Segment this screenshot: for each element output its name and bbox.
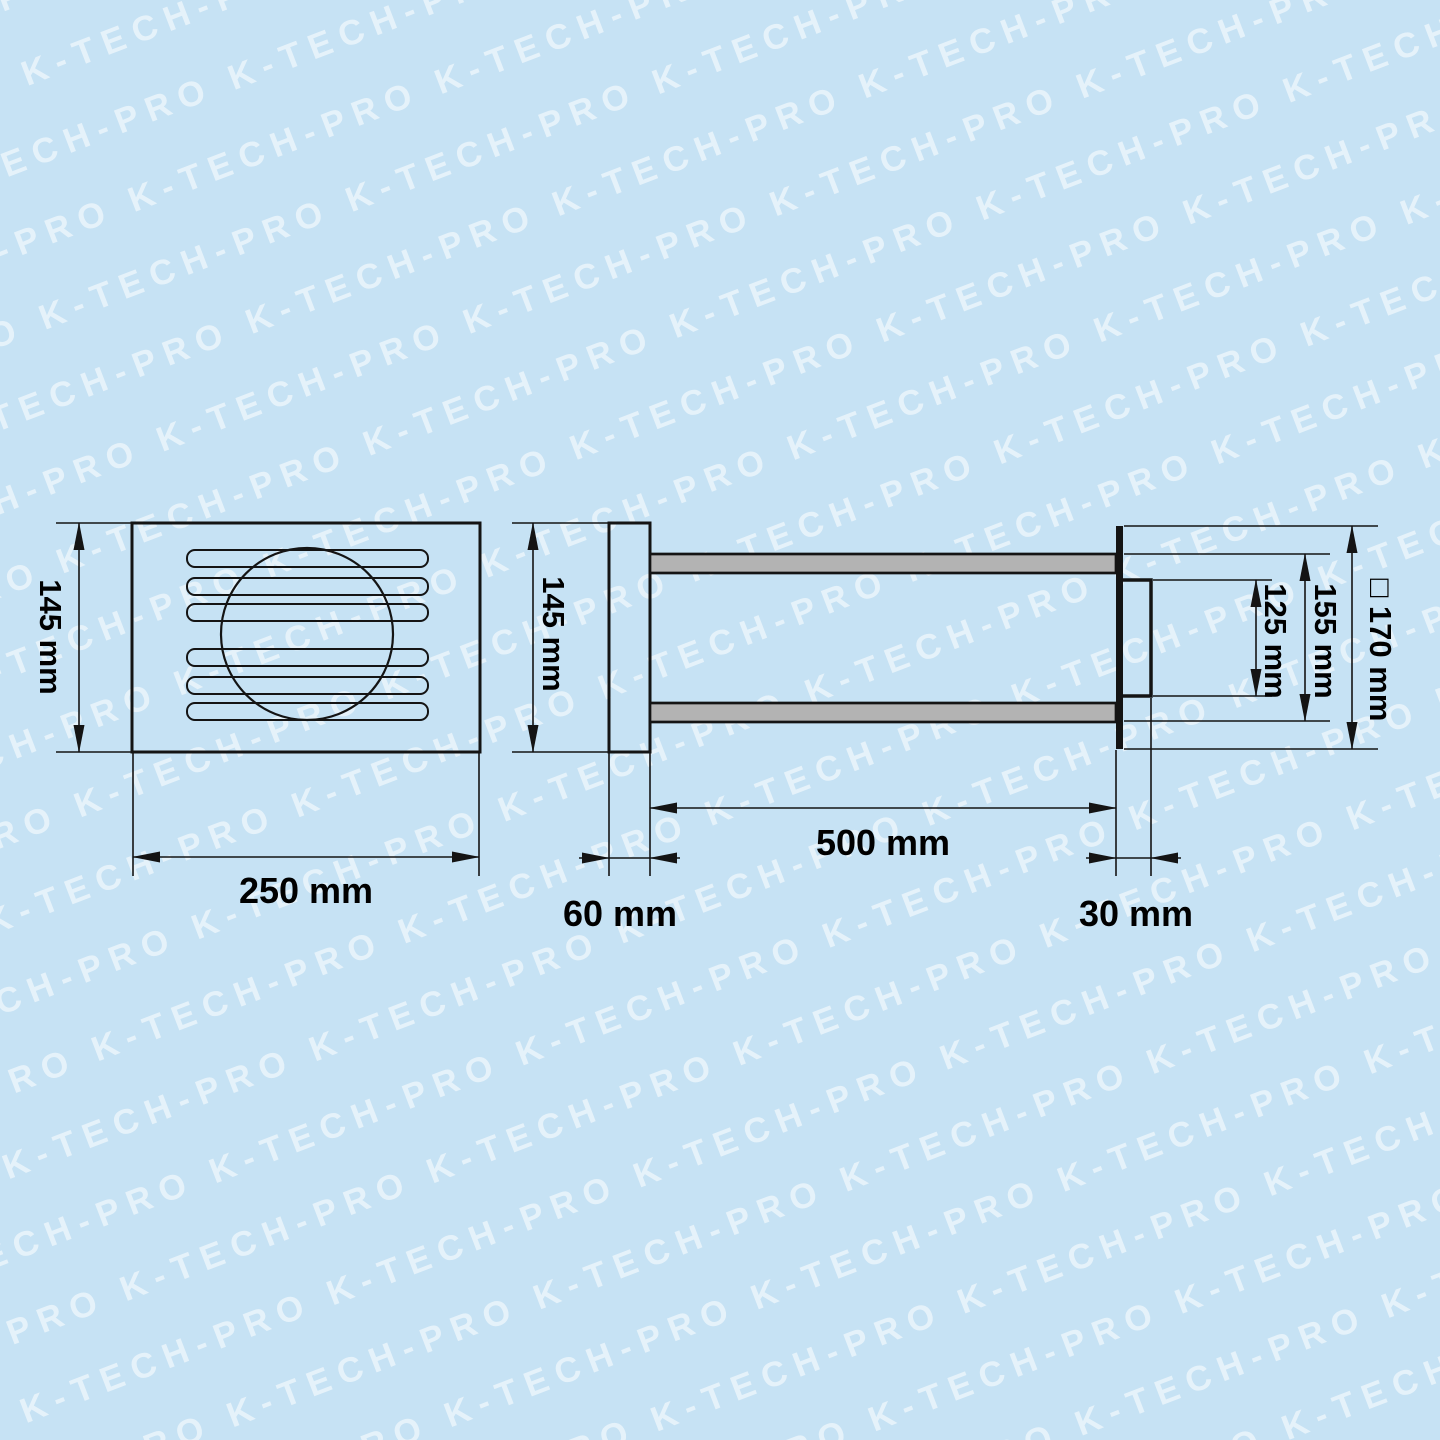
grille-slat <box>187 578 428 595</box>
side-view-duct <box>609 523 1151 752</box>
duct-wall-bottom <box>650 703 1116 722</box>
dim-label-front-width: 250 mm <box>239 870 373 911</box>
dim-label-duct-length: 500 mm <box>816 822 950 863</box>
dim-label-front-height: 145 mm <box>33 579 68 694</box>
grille-slat <box>187 677 428 694</box>
dim-spigot-height: 125 mm <box>1153 580 1293 699</box>
dim-label-spigot-length: 30 mm <box>1079 893 1193 934</box>
dim-side-plate-depth: 60 mm <box>563 753 680 934</box>
dim-spigot-length: 30 mm <box>1079 698 1193 934</box>
dim-label-spigot-height: 125 mm <box>1258 583 1293 698</box>
front-view-grille <box>132 523 480 752</box>
dim-label-plate-depth: 60 mm <box>563 893 677 934</box>
dim-front-width: 250 mm <box>133 753 479 911</box>
dim-side-plate-height: 145 mm <box>512 523 609 752</box>
dim-label-overall-square: □ 170 mm <box>1363 579 1398 722</box>
front-plate-outline <box>609 523 650 752</box>
duct-spigot <box>1121 580 1151 696</box>
dim-label-side-plate-height: 145 mm <box>536 576 571 691</box>
duct-wall-top <box>650 554 1116 573</box>
dim-front-height: 145 mm <box>33 523 133 752</box>
technical-drawing-page: K-TECH-PRO K-TECH-PRO K-TECH-PRO K-TECH-… <box>0 0 1440 1440</box>
grille-slat <box>187 703 428 720</box>
dimension-drawing: 145 mm 250 mm 145 mm <box>0 0 1440 1440</box>
dim-duct-length: 500 mm <box>650 750 1116 876</box>
grille-slat <box>187 550 428 567</box>
dim-label-duct-outer-height: 155 mm <box>1308 583 1343 698</box>
